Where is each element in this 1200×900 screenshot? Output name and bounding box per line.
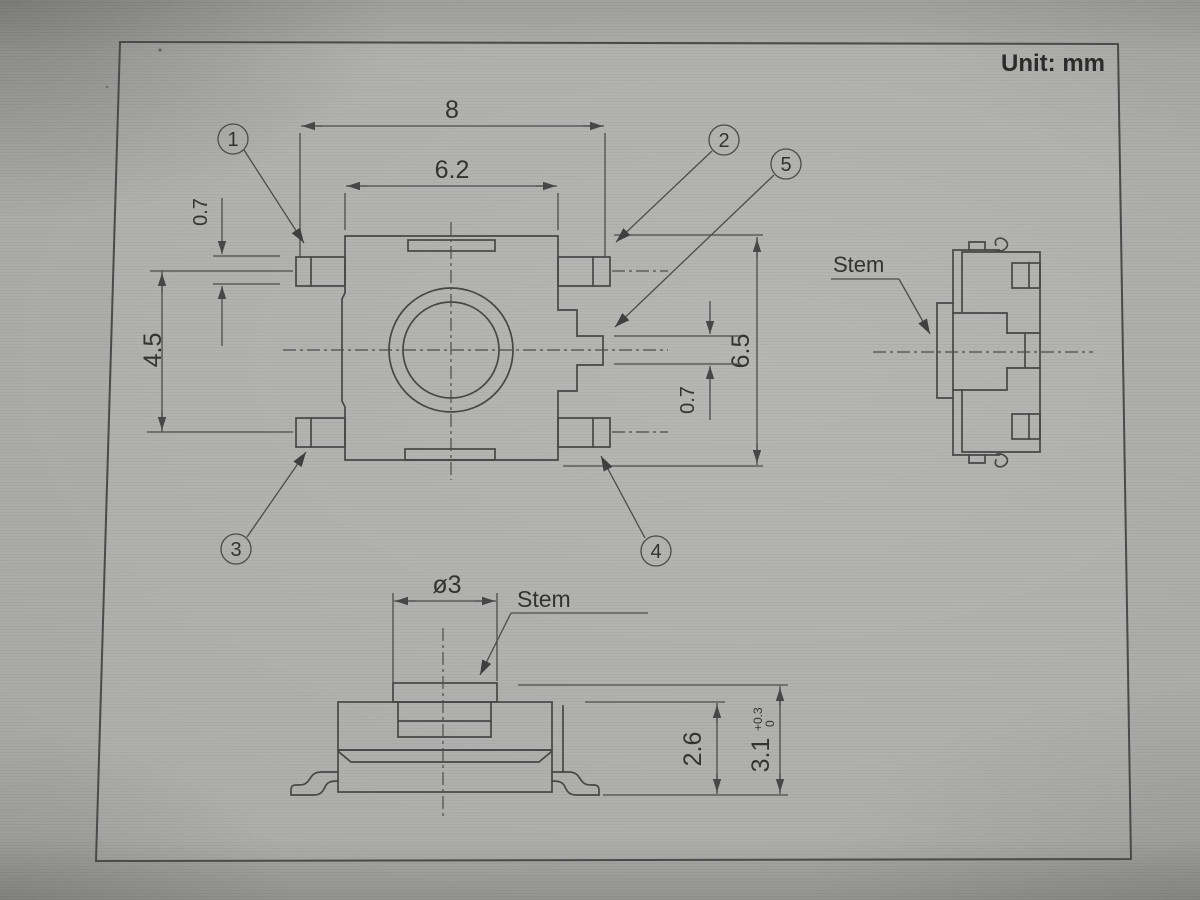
datasheet-photo: Unit: mm <box>0 0 1200 900</box>
dim-text-stem-diameter: ø3 <box>432 571 461 599</box>
dim-text-3-1: 3.1 <box>747 738 775 773</box>
dim-text-0-7-right: 0.7 <box>677 386 699 414</box>
dim-tolerance-lower: 0 <box>763 720 777 727</box>
svg-text:2: 2 <box>718 130 729 152</box>
front-stem-label: Stem <box>517 586 571 612</box>
dim-text-0-7-left: 0.7 <box>190 198 212 226</box>
tactile-switch-dimension-drawing: Unit: mm <box>0 0 1200 900</box>
photo-speck <box>106 86 109 89</box>
photo-speck <box>158 48 161 51</box>
svg-text:4: 4 <box>650 541 661 563</box>
dim-text-6-2: 6.2 <box>435 156 470 184</box>
photo-speck <box>845 265 848 268</box>
dim-text-8: 8 <box>445 96 459 124</box>
unit-label: Unit: mm <box>1001 50 1105 77</box>
svg-text:1: 1 <box>227 129 238 151</box>
svg-text:5: 5 <box>780 154 791 176</box>
dim-text-6-5: 6.5 <box>727 334 755 369</box>
dim-text-2-6: 2.6 <box>679 732 707 767</box>
svg-text:3: 3 <box>230 539 241 561</box>
side-stem-label: Stem <box>833 252 884 277</box>
dim-text-4-5: 4.5 <box>139 333 167 368</box>
